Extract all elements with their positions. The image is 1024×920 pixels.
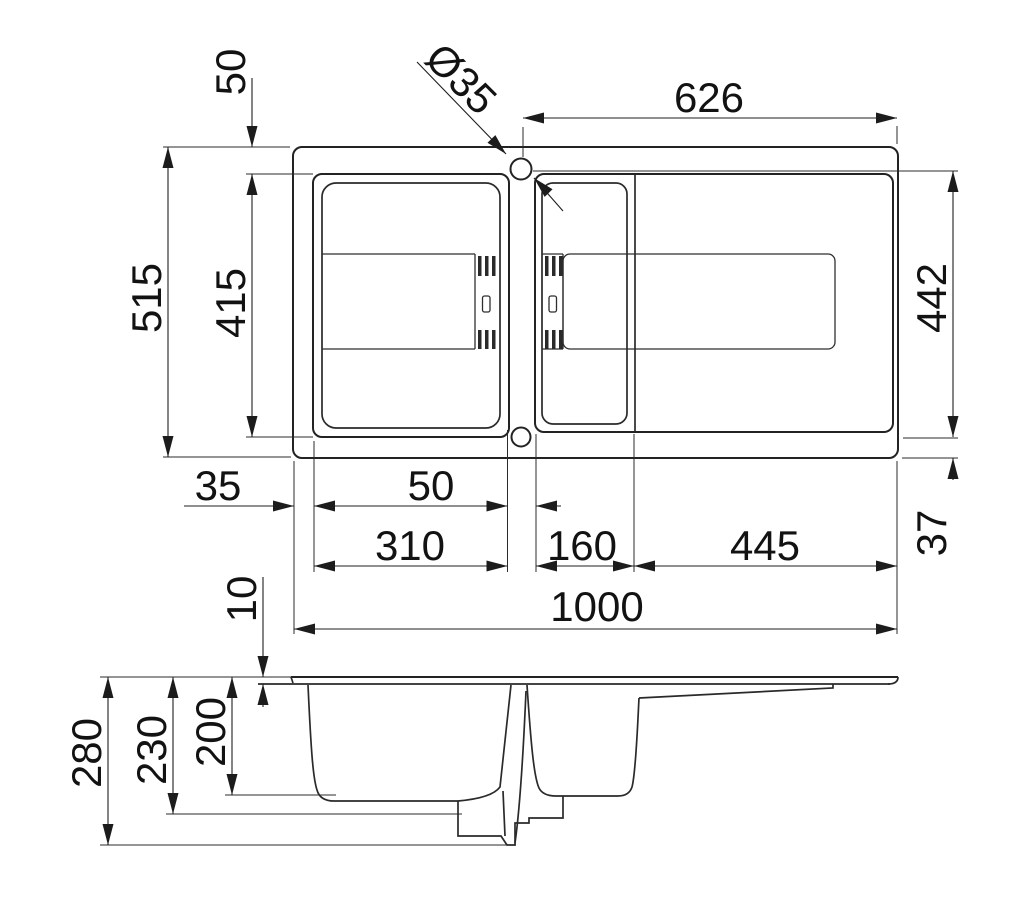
drainer-underside xyxy=(639,684,833,698)
sink-dimension-drawing: 626 515 50 415 442 37 Ø35 35 50 310 160 … xyxy=(0,0,1024,920)
dim-recess-front-back: 442 xyxy=(908,263,955,333)
main-bowl-outer xyxy=(313,174,509,437)
divider-channel-left xyxy=(503,791,505,836)
right-recess-outline xyxy=(535,174,893,432)
dim-small-bowl-width: 160 xyxy=(547,522,617,569)
main-bowl-inner xyxy=(322,183,500,428)
dim-drainer-length: 445 xyxy=(730,522,800,569)
dim-bowl-outer-depth: 230 xyxy=(128,715,175,785)
right-end-cap xyxy=(888,677,898,684)
small-bowl xyxy=(542,183,627,424)
overflow-slots-small xyxy=(542,254,563,349)
dim-bowl-spacing: 50 xyxy=(408,462,455,509)
dim-overall-height: 280 xyxy=(63,718,110,788)
dim-bowl-top-offset: 50 xyxy=(207,49,254,96)
main-bowl-section xyxy=(308,685,511,801)
dim-overall-length: 1000 xyxy=(550,583,643,630)
dim-main-bowl-front-back: 415 xyxy=(207,268,254,338)
plan-view xyxy=(293,147,898,458)
dim-bottom-rim-width: 37 xyxy=(908,510,955,557)
small-bowl-section xyxy=(527,685,639,796)
sink-outline xyxy=(293,147,898,458)
dim-tap-hole-diameter: Ø35 xyxy=(417,34,506,123)
dim-rim-thickness: 10 xyxy=(218,576,265,623)
dim-main-bowl-width: 310 xyxy=(375,522,445,569)
drain-sump-section xyxy=(458,796,563,845)
dim-tap-to-right-edge: 626 xyxy=(674,74,744,121)
dim-bowl-inner-depth: 200 xyxy=(187,697,234,767)
dim-overall-width: 515 xyxy=(123,263,170,333)
side-view xyxy=(258,677,898,845)
technical-drawing-page: 626 515 50 415 442 37 Ø35 35 50 310 160 … xyxy=(0,0,1024,920)
overflow-slots-main xyxy=(322,254,496,349)
dim-left-rim-width: 35 xyxy=(195,462,242,509)
drain-hole xyxy=(512,428,531,447)
divider-channel-right xyxy=(515,691,526,843)
drainer-groove-area xyxy=(563,254,835,349)
tap-hole xyxy=(511,159,532,180)
